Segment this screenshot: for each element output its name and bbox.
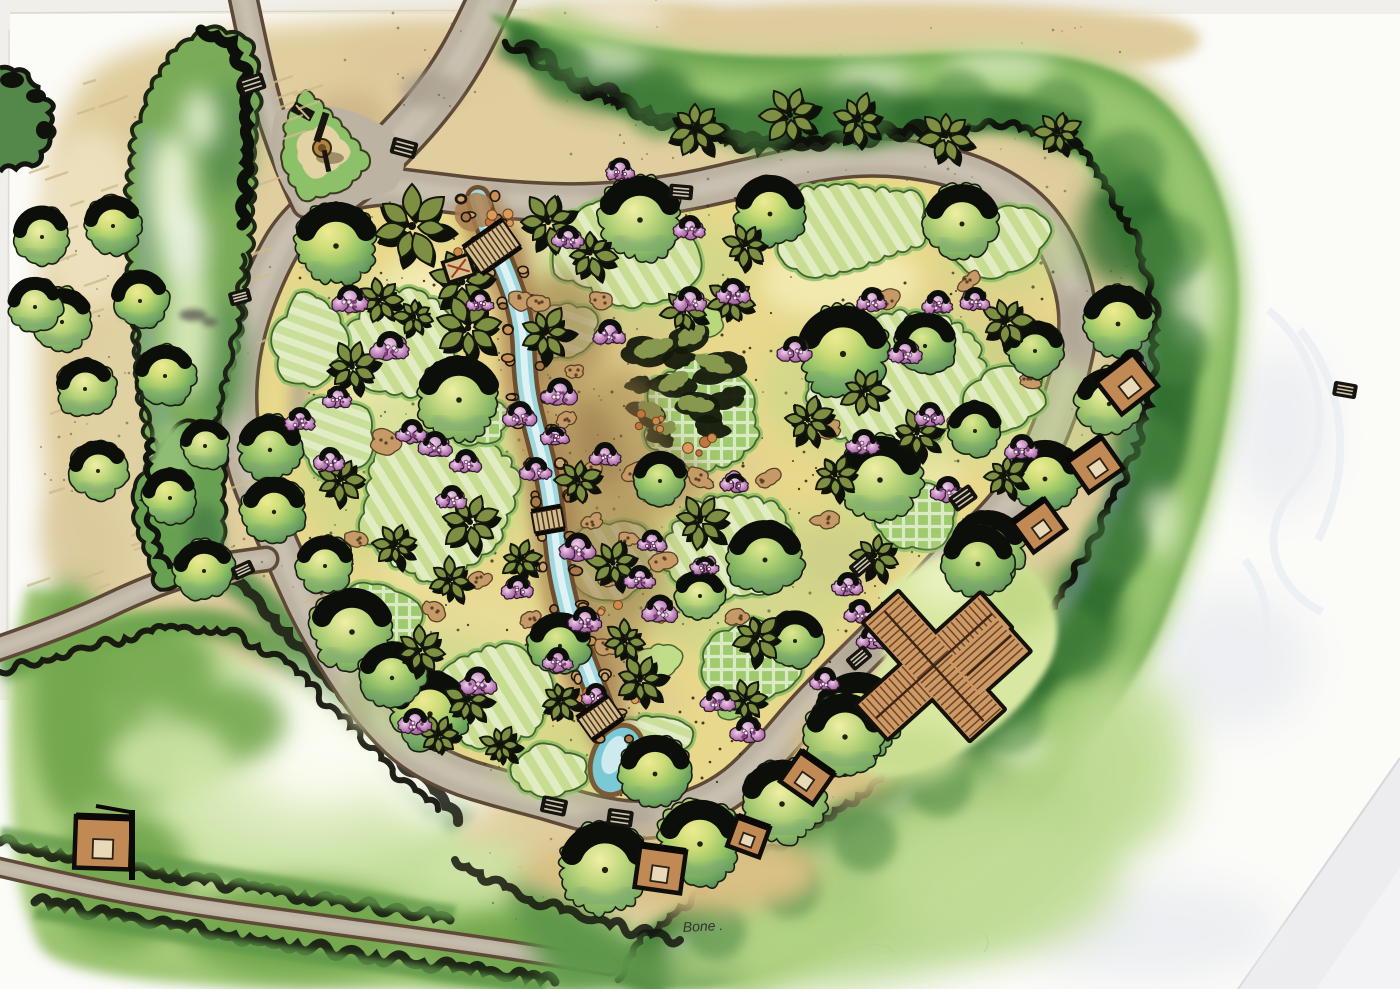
svg-text:Bone .: Bone . [682, 917, 723, 935]
